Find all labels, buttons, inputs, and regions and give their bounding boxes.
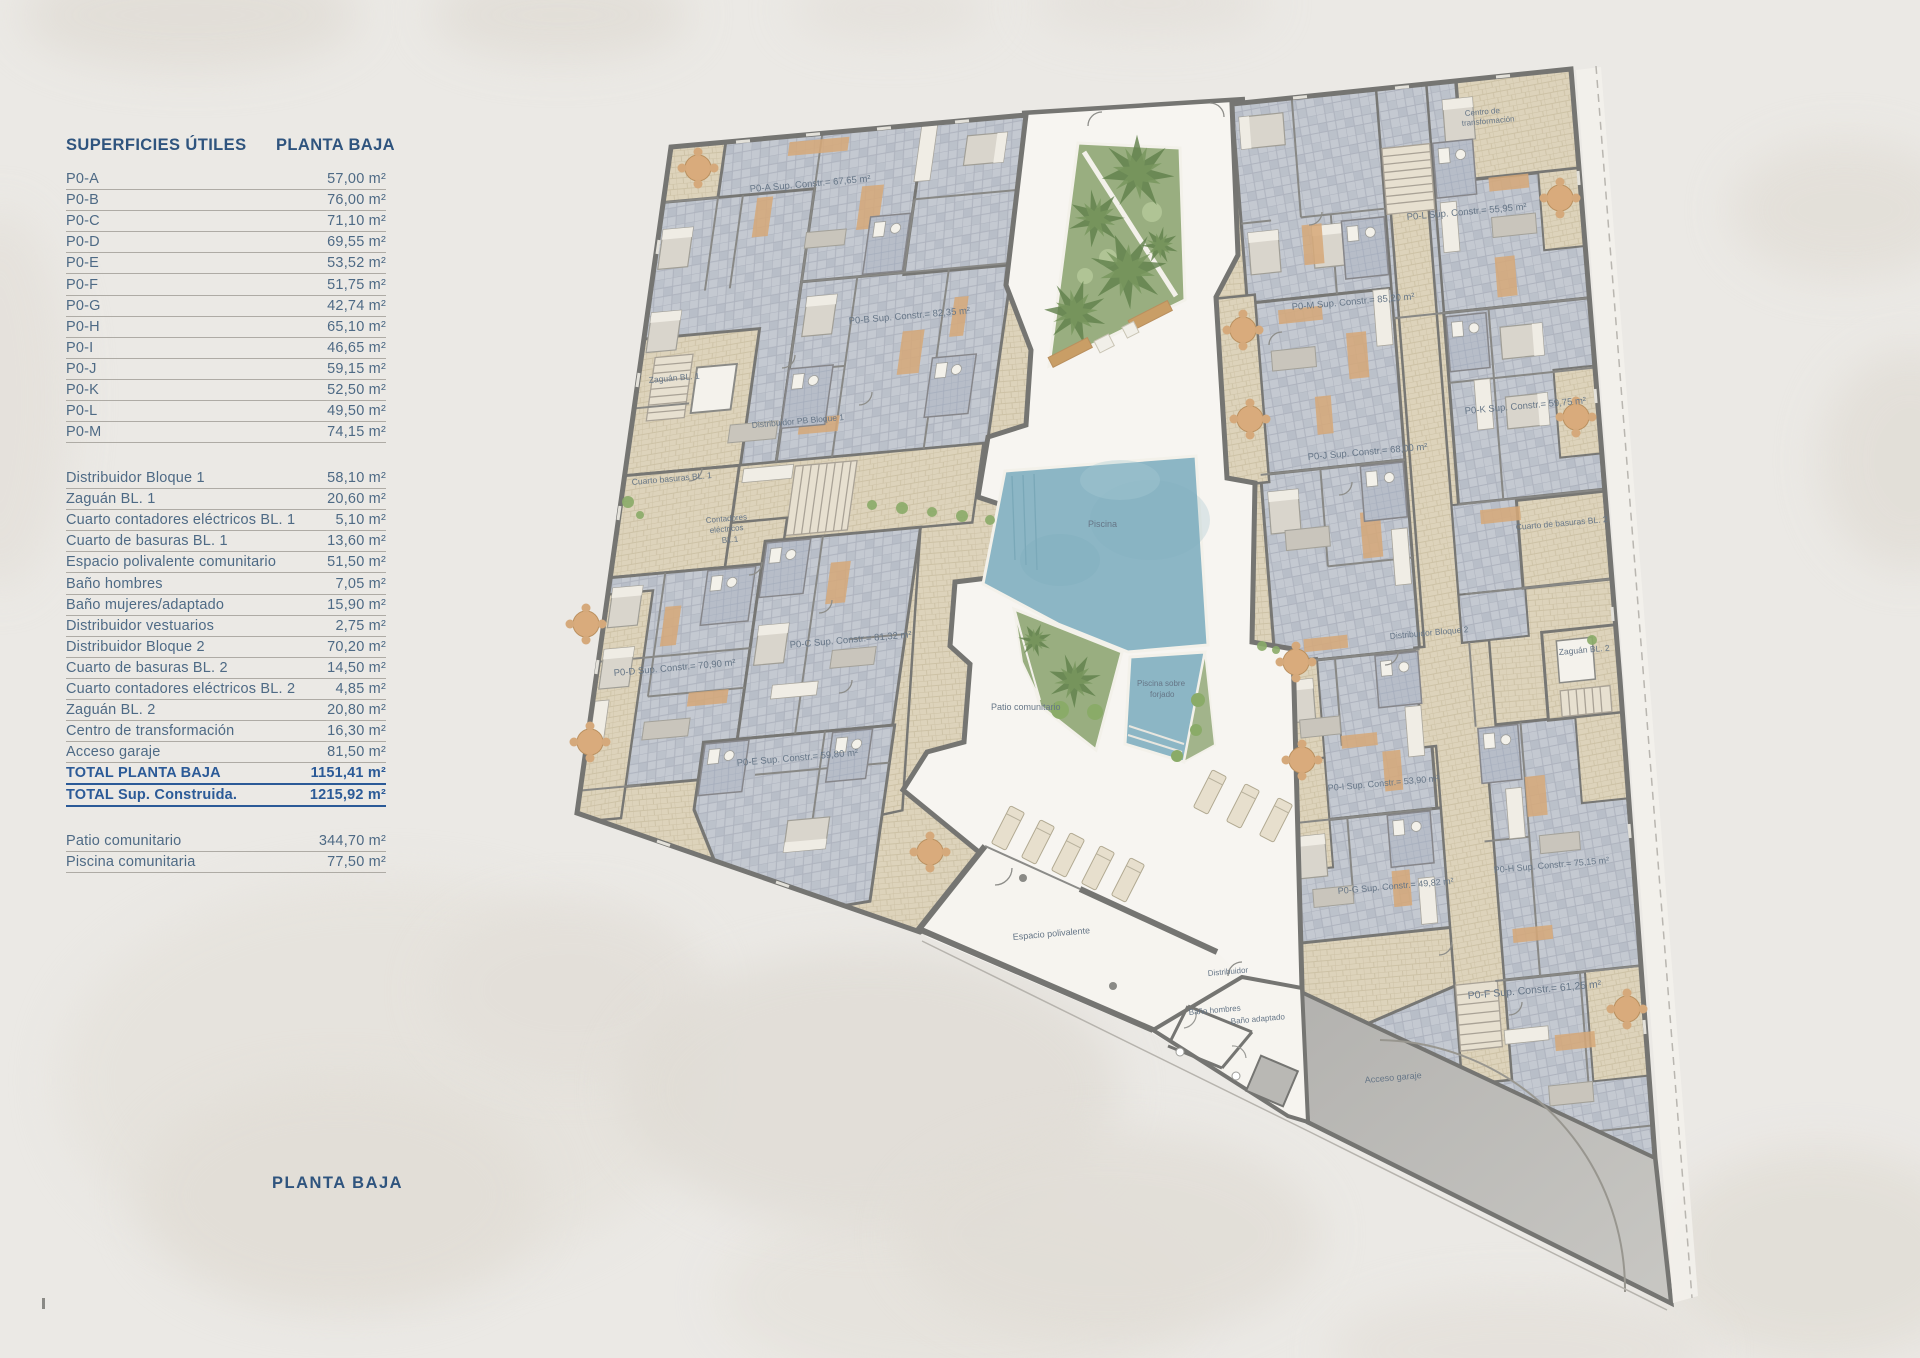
svg-text:Piscina: Piscina: [1088, 519, 1117, 529]
svg-text:forjado: forjado: [1150, 690, 1175, 699]
svg-text:Patio comunitario: Patio comunitario: [991, 702, 1061, 712]
svg-text:BL.1: BL.1: [721, 535, 739, 545]
svg-text:Piscina sobre: Piscina sobre: [1137, 679, 1186, 688]
